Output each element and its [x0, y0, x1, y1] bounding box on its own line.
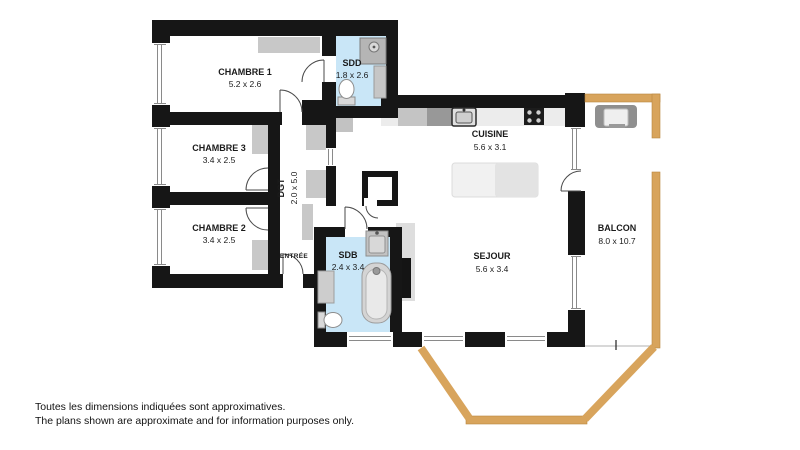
hall-wardrobe-1	[306, 124, 326, 150]
door-chambre1	[280, 90, 302, 112]
room-label-chambre2: CHAMBRE 2	[192, 223, 246, 233]
toilet-icon-sdd	[338, 80, 355, 106]
railing-right-2	[652, 172, 660, 348]
room-dims-chambre2: 3.4 x 2.5	[203, 235, 236, 245]
floorplan-svg: CHAMBRE 1 5.2 x 2.6 SDD 1.8 x 2.6 CHAMBR…	[0, 0, 800, 450]
room-label-sejour: SEJOUR	[473, 251, 511, 261]
room-label-sdb: SDB	[338, 250, 358, 260]
room-label-chambre3: CHAMBRE 3	[192, 143, 246, 153]
sdd-cabinet	[374, 66, 386, 98]
door-shaft	[366, 206, 378, 218]
room-dims-cuisine: 5.6 x 3.1	[474, 142, 507, 152]
room-dims-sejour: 5.6 x 3.4	[476, 264, 509, 274]
room-dims-chambre1: 5.2 x 2.6	[229, 79, 262, 89]
kitchen-appliance	[398, 108, 427, 126]
kitchen-oven	[427, 108, 452, 126]
railing-right-1	[652, 94, 660, 138]
room-label-entree: ENTRÉE	[280, 251, 309, 260]
railing-top	[585, 94, 660, 102]
room-dims-balcon: 8.0 x 10.7	[598, 236, 636, 246]
room-label-sdd: SDD	[342, 58, 362, 68]
door-chambre2	[246, 208, 268, 230]
balcony-railing	[421, 94, 660, 424]
sdb-washer	[318, 271, 334, 303]
closet-chambre3	[252, 124, 270, 154]
hall-wardrobe-2	[306, 170, 326, 198]
closet-chambre2	[252, 240, 268, 270]
room-dims-sdd: 1.8 x 2.6	[336, 70, 369, 80]
kitchen-island-half	[495, 163, 538, 197]
stove-icon	[524, 108, 544, 125]
fridge-icon	[336, 118, 353, 132]
floorplan-page: CHAMBRE 1 5.2 x 2.6 SDD 1.8 x 2.6 CHAMBR…	[0, 0, 800, 450]
shower-icon	[360, 38, 386, 64]
sink-icon-sdb	[366, 231, 388, 256]
room-dims-sdb: 2.4 x 3.4	[332, 262, 365, 272]
bathtub-icon	[362, 263, 391, 323]
closet-chambre1	[258, 37, 320, 53]
sink-icon-cuisine	[452, 108, 476, 126]
room-label-dgt: DGT	[276, 178, 286, 198]
disclaimer: Toutes les dimensions indiquées sont app…	[35, 401, 354, 428]
railing-diag-right	[585, 347, 654, 419]
toilet-icon-sdb	[318, 312, 342, 328]
room-dims-chambre3: 3.4 x 2.5	[203, 155, 236, 165]
disclaimer-line-en: The plans shown are approximate and for …	[35, 415, 354, 429]
room-label-balcon: BALCON	[598, 223, 637, 233]
door-chambre3	[246, 168, 268, 190]
room-dims-dgt: 2.0 x 5.0	[289, 171, 299, 204]
room-label-chambre1: CHAMBRE 1	[218, 67, 272, 77]
door-sdd	[302, 60, 324, 82]
armchair-icon	[595, 105, 637, 128]
hall-wardrobe-3	[302, 204, 313, 240]
disclaimer-line-fr: Toutes les dimensions indiquées sont app…	[35, 401, 354, 415]
railing-diag-left	[421, 348, 469, 418]
room-label-cuisine: CUISINE	[472, 129, 509, 139]
furniture	[252, 37, 568, 301]
door-sdb	[345, 207, 367, 229]
railing-bottom	[466, 416, 587, 424]
